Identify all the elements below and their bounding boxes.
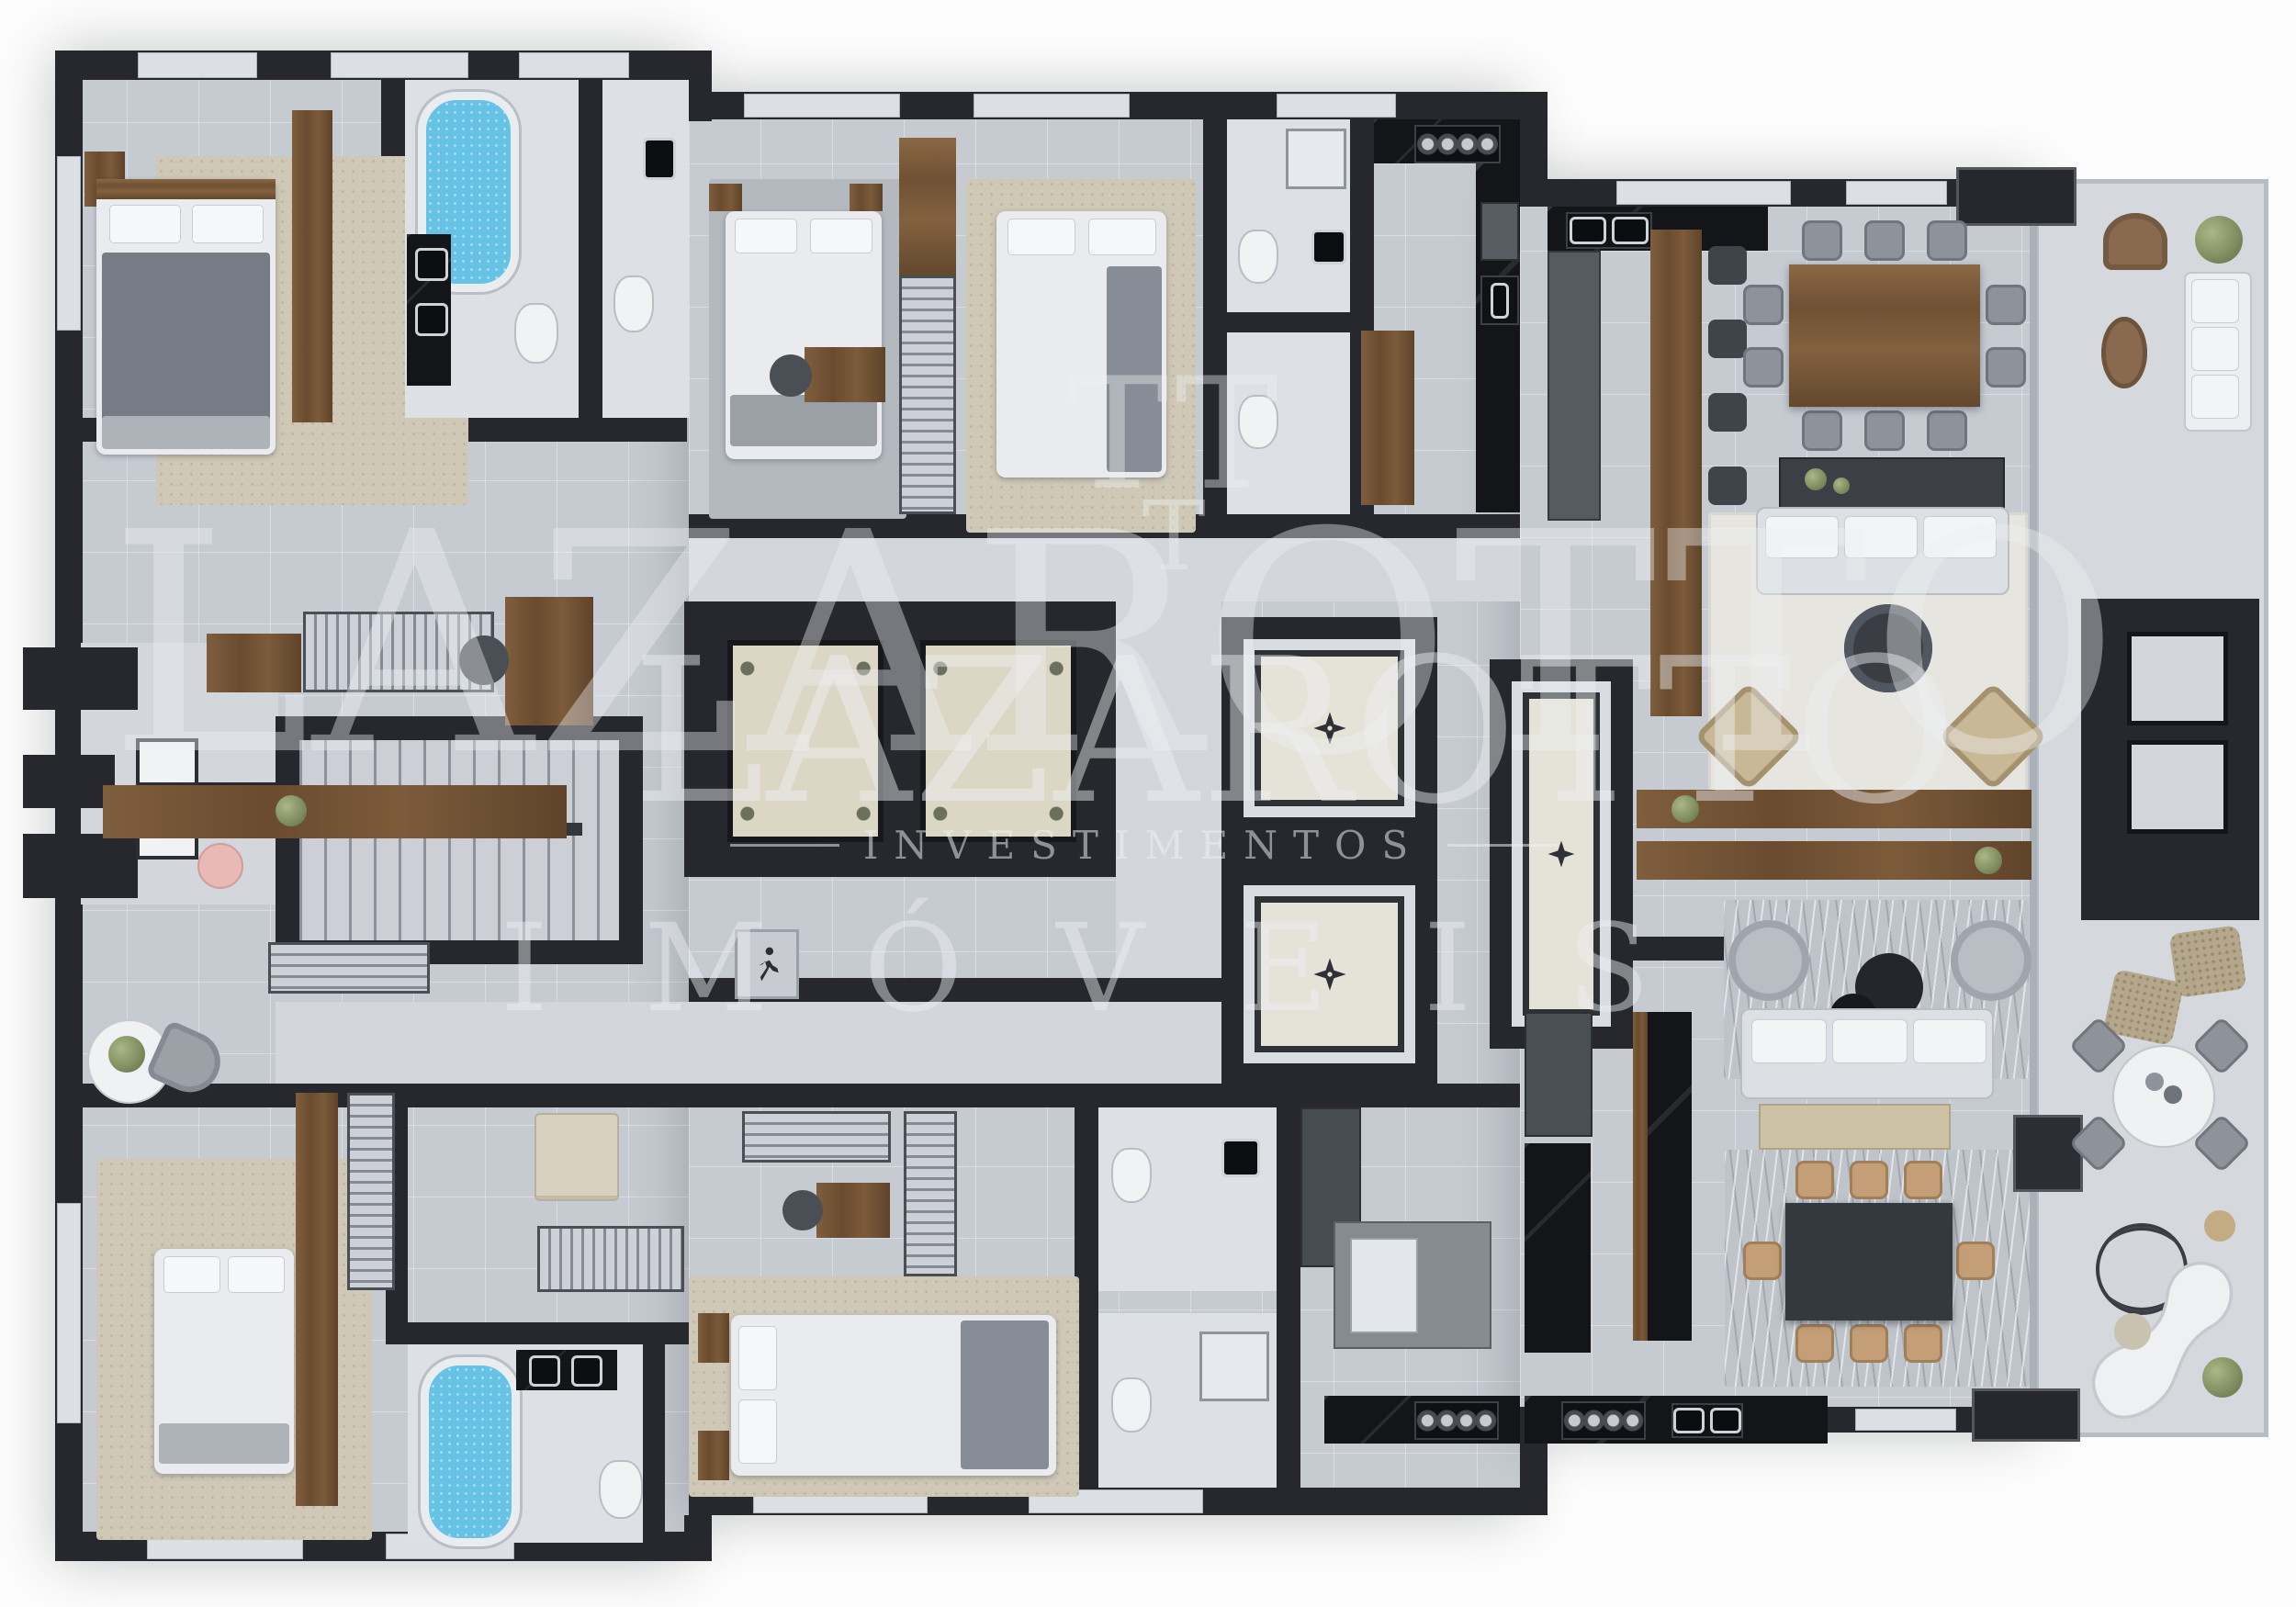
closet-louver xyxy=(742,1111,891,1163)
dining-chair xyxy=(1986,285,2026,325)
lounge-chair xyxy=(1951,920,2032,1001)
toilet xyxy=(1111,1377,1152,1433)
refrigerator xyxy=(1525,1012,1593,1137)
wall-interior xyxy=(643,1322,665,1532)
floor-frame xyxy=(1523,692,1600,1016)
bar-stool xyxy=(1708,466,1747,505)
window xyxy=(1855,1409,1956,1431)
wall-step-bottom-2 xyxy=(1520,1433,1548,1515)
sofa-cushion xyxy=(1913,1019,1986,1063)
staircase xyxy=(299,740,619,940)
sofa-cushion xyxy=(2191,375,2239,419)
plant xyxy=(108,1036,145,1073)
exit-sign-panel xyxy=(735,929,799,999)
bed-runner xyxy=(159,1423,289,1464)
pillow xyxy=(1007,219,1075,255)
plant xyxy=(276,795,307,826)
washbasin xyxy=(1311,230,1346,264)
bathtub xyxy=(421,1357,520,1546)
window xyxy=(138,52,257,78)
closet-louver xyxy=(904,1111,957,1276)
floor-frame xyxy=(1255,650,1404,806)
washbasin xyxy=(415,303,448,336)
pouf xyxy=(2204,1210,2235,1242)
nightstand xyxy=(698,1313,729,1363)
floor-plan-canvas: TT T LAZAROTTO LAZAROTTO INVESTIMENTOS I… xyxy=(0,0,2296,1607)
dining-chair xyxy=(1904,1161,1942,1199)
exit-person-icon xyxy=(751,946,782,983)
toilet xyxy=(1238,230,1278,284)
washbasin xyxy=(415,248,448,281)
wicker-armchair xyxy=(2103,213,2167,270)
duvet xyxy=(102,253,270,427)
bathroom-floor xyxy=(602,80,689,418)
pillow xyxy=(192,205,264,243)
dining-chair xyxy=(1927,220,1967,261)
desk-chair xyxy=(770,354,812,397)
closet-louver xyxy=(268,942,430,994)
window xyxy=(331,52,468,78)
dining-table xyxy=(1789,264,1980,407)
service-shaft xyxy=(136,738,198,786)
toilet xyxy=(613,275,654,332)
dining-chair xyxy=(1850,1161,1888,1199)
decor-vase xyxy=(1833,478,1850,494)
bed-runner xyxy=(102,416,270,449)
dining-chair xyxy=(1802,220,1842,261)
bed xyxy=(154,1249,294,1474)
dining-chair xyxy=(1864,220,1905,261)
wall-entry-stub xyxy=(23,755,115,808)
dining-chair xyxy=(1864,410,1905,451)
closet-louver xyxy=(899,275,956,514)
wall-step-bottom-1 xyxy=(684,1515,712,1561)
dining-chair xyxy=(1927,410,1967,451)
desk xyxy=(805,347,885,402)
bar-stool xyxy=(1708,320,1747,358)
sofa xyxy=(1756,507,2009,595)
shower xyxy=(1199,1332,1269,1401)
dining-chair xyxy=(1850,1324,1888,1363)
washbasin xyxy=(529,1355,560,1387)
stove-burners-icon xyxy=(1414,125,1501,163)
sofa xyxy=(1740,1008,1994,1099)
wall-interior xyxy=(579,80,602,440)
toilet xyxy=(514,303,558,364)
console-table xyxy=(1759,1104,1951,1150)
bed-runner xyxy=(961,1320,1049,1469)
pillow xyxy=(1088,219,1156,255)
pouf xyxy=(2114,1313,2151,1350)
kitchen-counter xyxy=(1525,1143,1591,1353)
oven xyxy=(1480,202,1519,261)
desk-chair xyxy=(782,1190,823,1231)
sofa-cushion xyxy=(1832,1019,1908,1063)
window xyxy=(57,156,81,331)
wardrobe-panel xyxy=(296,1093,338,1506)
pillow xyxy=(735,219,797,253)
bed xyxy=(996,211,1166,478)
plant xyxy=(2202,1357,2243,1398)
bed xyxy=(731,1315,1056,1476)
toilet xyxy=(599,1460,643,1519)
washbasin xyxy=(571,1355,602,1387)
floor-medallion-icon xyxy=(1310,954,1350,995)
foyer-decorative-floor xyxy=(1512,681,1611,1027)
wall-block-top-right xyxy=(1956,167,2077,226)
sofa-cushion xyxy=(1923,516,1997,558)
window xyxy=(974,94,1130,118)
pillow xyxy=(738,1399,777,1464)
pillow xyxy=(228,1256,285,1293)
closet-louver xyxy=(347,1093,395,1290)
plant xyxy=(2195,216,2243,264)
corridor xyxy=(689,538,1520,601)
window xyxy=(744,94,900,118)
pillow xyxy=(810,219,872,253)
desk xyxy=(816,1183,890,1238)
floor-medallion-icon xyxy=(1545,837,1578,871)
dining-chair xyxy=(1795,1161,1834,1199)
closet-louver xyxy=(537,1226,684,1292)
oval-side-table xyxy=(2101,317,2147,388)
kitchen-sink xyxy=(1480,275,1519,325)
window xyxy=(1277,94,1396,118)
wardrobe xyxy=(899,138,956,275)
stove-burners-icon xyxy=(1561,1401,1646,1440)
terrace-table-decor xyxy=(2145,1073,2164,1091)
floor-frame xyxy=(1255,896,1404,1052)
wall-interior xyxy=(1203,312,1374,332)
wall-entry-stub xyxy=(23,834,138,898)
window xyxy=(1616,181,1791,205)
window xyxy=(57,1203,81,1423)
elevator-car xyxy=(920,640,1076,842)
wall-block-bottom-right xyxy=(1972,1388,2080,1442)
dining-chair xyxy=(1743,347,1784,388)
decor-vase xyxy=(1805,468,1827,490)
toilet xyxy=(1238,395,1278,449)
shower xyxy=(1286,129,1346,189)
kitchen-island-bar xyxy=(1650,230,1702,716)
pillow xyxy=(163,1256,220,1293)
terrace-table-decor xyxy=(2164,1085,2182,1104)
tall-cabinets xyxy=(1548,251,1601,521)
island-panel xyxy=(1350,1238,1418,1333)
kitchen-sink xyxy=(1566,212,1652,249)
bed-throw xyxy=(1107,266,1162,472)
dining-chair xyxy=(1956,1242,1995,1280)
stove-burners-icon xyxy=(1414,1401,1499,1440)
kitchen-sink xyxy=(1671,1403,1743,1438)
headboard xyxy=(96,179,276,199)
foyer-decorative-floor xyxy=(1244,885,1415,1063)
dining-chair xyxy=(1795,1324,1834,1363)
elevator-car xyxy=(727,640,884,842)
sofa-cushion xyxy=(1765,516,1839,558)
vanity-stool xyxy=(197,843,243,889)
sofa-cushion xyxy=(1751,1019,1827,1063)
window xyxy=(1846,181,1947,205)
tv-cabinet xyxy=(2013,1115,2083,1192)
nightstand xyxy=(698,1431,729,1480)
kitchen-island-panel xyxy=(1633,1012,1648,1341)
bar-stool xyxy=(1708,246,1747,285)
floor-medallion-icon xyxy=(1310,708,1350,748)
lounge-chair xyxy=(1728,920,1809,1001)
desk-chair xyxy=(459,635,509,685)
toilet xyxy=(1111,1148,1152,1203)
bar-stool xyxy=(1708,393,1747,432)
dining-chair xyxy=(1904,1324,1942,1363)
nightstand xyxy=(709,184,742,211)
dining-chair xyxy=(1802,410,1842,451)
window xyxy=(519,52,629,78)
kitchen-island xyxy=(1361,331,1414,505)
nightstand xyxy=(850,184,883,211)
vanity-console xyxy=(103,785,567,838)
balcony-sofa xyxy=(2184,272,2252,432)
dining-chair xyxy=(1743,1242,1782,1280)
sofa-cushion xyxy=(2191,279,2239,323)
washbasin xyxy=(643,138,676,180)
private-elevator-car xyxy=(2127,740,2228,834)
console-table xyxy=(1637,841,2032,880)
wall-interior xyxy=(1277,1107,1300,1488)
pillow xyxy=(738,1326,777,1390)
plant xyxy=(1671,795,1699,823)
bench xyxy=(535,1113,619,1201)
corridor xyxy=(1116,601,1221,978)
shelf xyxy=(207,634,301,692)
desk xyxy=(505,597,593,725)
private-elevator-car xyxy=(2127,632,2228,725)
sofa-cushion xyxy=(1844,516,1918,558)
dining-table xyxy=(1785,1203,1953,1320)
coffee-table xyxy=(1844,604,1932,692)
washbasin xyxy=(1221,1139,1260,1177)
bed xyxy=(726,211,882,459)
foyer-decorative-floor xyxy=(1244,639,1415,817)
plant xyxy=(1975,847,2002,874)
corridor xyxy=(276,1002,1221,1084)
dining-chair xyxy=(1986,347,2026,388)
sofa-cushion xyxy=(2191,327,2239,371)
bed-runner xyxy=(730,395,877,446)
pillow xyxy=(109,205,181,243)
bed xyxy=(96,179,276,455)
wall-entry-stub xyxy=(23,647,138,710)
wardrobe xyxy=(292,110,332,422)
dining-chair xyxy=(1743,285,1784,325)
